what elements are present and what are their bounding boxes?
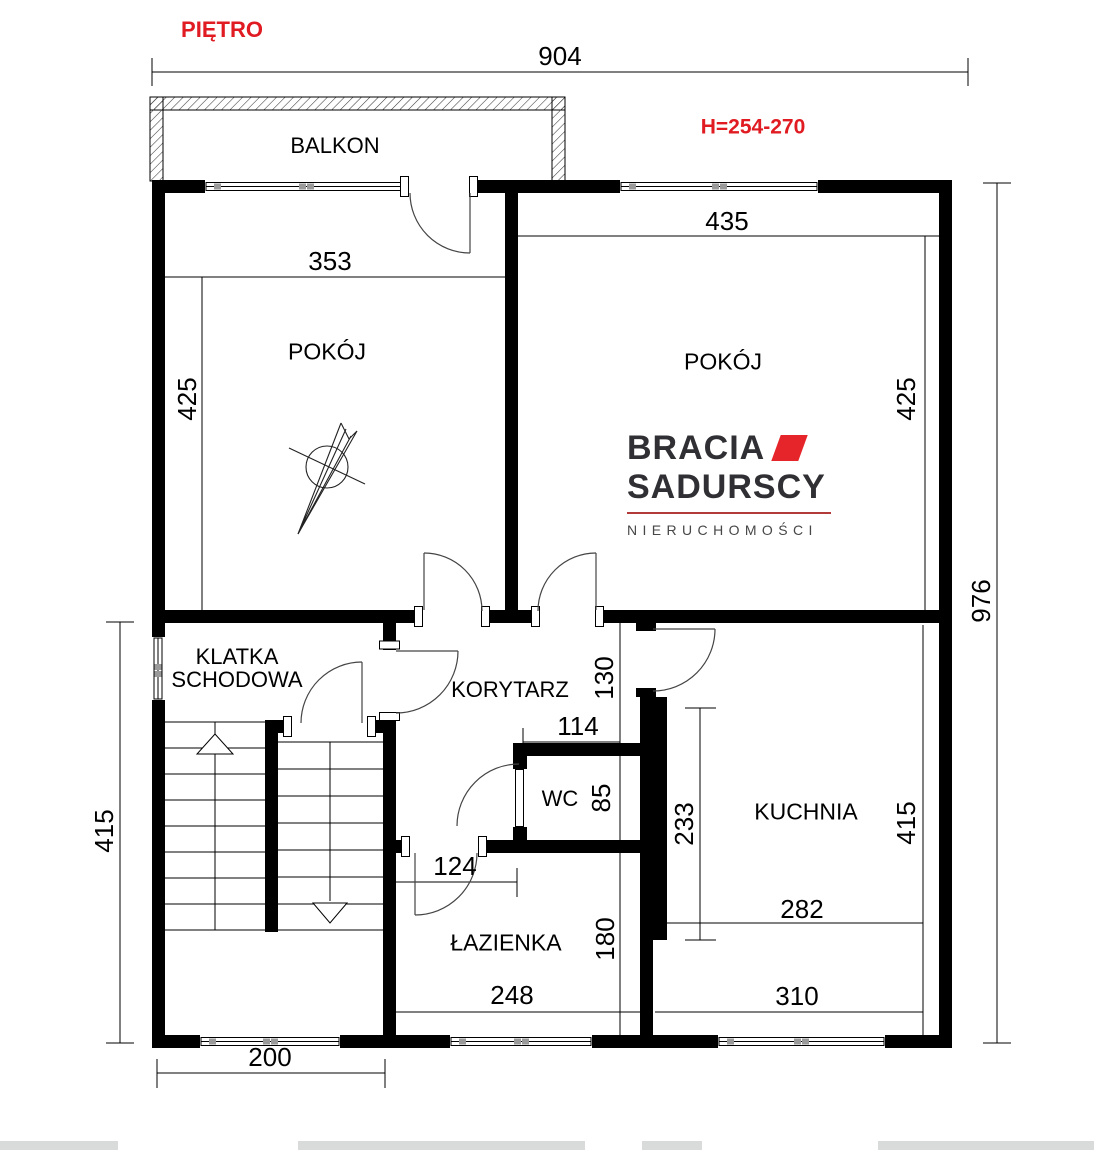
stair-flight-down	[278, 742, 383, 930]
floor-plan-page: PIĘTRO H=254-270 BALKON POKÓJ POKÓJ KLAT…	[0, 0, 1094, 1150]
door-staircase	[396, 651, 458, 713]
logo-flag-icon	[771, 435, 807, 461]
window-room-right	[621, 183, 817, 191]
stair-down-arrow-icon	[313, 903, 347, 923]
door-stair-flight	[301, 662, 362, 723]
room-label-kitchen: KUCHNIA	[754, 801, 858, 824]
ceiling-height-note: H=254-270	[701, 117, 806, 138]
logo-text-line3: NIERUCHOMOŚCI	[627, 522, 831, 538]
stair-flight-up	[165, 722, 265, 930]
door-room-left	[424, 553, 482, 611]
dim-room-right-width: 435	[705, 208, 748, 234]
logo-rule	[627, 512, 831, 514]
dim-kitchen-bottom-width: 310	[775, 983, 818, 1009]
dim-room-left-height: 425	[174, 377, 200, 420]
agency-logo: BRACIA SADURSCY NIERUCHOMOŚCI	[627, 431, 831, 538]
scan-artifacts	[0, 1141, 1094, 1150]
dim-room-left-width: 353	[308, 248, 351, 274]
room-label-balcony: BALKON	[290, 135, 379, 157]
door-wc	[457, 764, 524, 827]
logo-text-line1: BRACIA	[627, 431, 765, 465]
dim-total-width: 904	[538, 43, 581, 69]
dim-corridor-depth: 130	[591, 656, 617, 699]
dim-staircase-height: 415	[91, 809, 117, 852]
room-label-left: POKÓJ	[288, 341, 366, 364]
window-staircase-left	[154, 638, 162, 699]
window-bathroom	[451, 1038, 591, 1046]
logo-text-line2: SADURSCY	[627, 470, 831, 504]
floor-plan-drawing	[0, 0, 1094, 1150]
stair-up-arrow-icon	[197, 734, 233, 754]
dim-wc-width: 114	[557, 713, 598, 739]
window-room-left	[206, 183, 407, 191]
dim-kitchen-inner-width: 282	[780, 896, 823, 922]
room-label-staircase-1: KLATKA	[196, 646, 279, 668]
room-label-corridor: KORYTARZ	[451, 679, 569, 701]
door-room-right	[538, 553, 596, 611]
window-kitchen	[719, 1038, 884, 1046]
dim-bathroom-door-offset: 124	[433, 853, 476, 879]
door-balcony	[410, 193, 470, 253]
room-label-wc: WC	[542, 788, 579, 810]
room-label-staircase-2: SCHODOWA	[171, 669, 302, 691]
north-arrow-icon	[289, 423, 365, 534]
dim-total-height: 976	[968, 579, 994, 622]
room-label-right: POKÓJ	[684, 351, 762, 374]
room-label-bathroom: ŁAZIENKA	[450, 932, 561, 955]
dim-bathroom-width: 248	[490, 982, 533, 1008]
door-kitchen	[653, 629, 715, 691]
logo-row-1: BRACIA	[627, 431, 831, 465]
dim-room-right-height: 425	[893, 377, 919, 420]
dim-bathroom-depth: 180	[592, 917, 618, 960]
dim-wc-depth: 85	[588, 784, 614, 813]
dim-kitchen-height: 415	[893, 801, 919, 844]
dim-kitchen-wall: 233	[671, 802, 697, 845]
floor-title: PIĘTRO	[181, 19, 263, 41]
dim-staircase-bottom-width: 200	[248, 1044, 291, 1070]
